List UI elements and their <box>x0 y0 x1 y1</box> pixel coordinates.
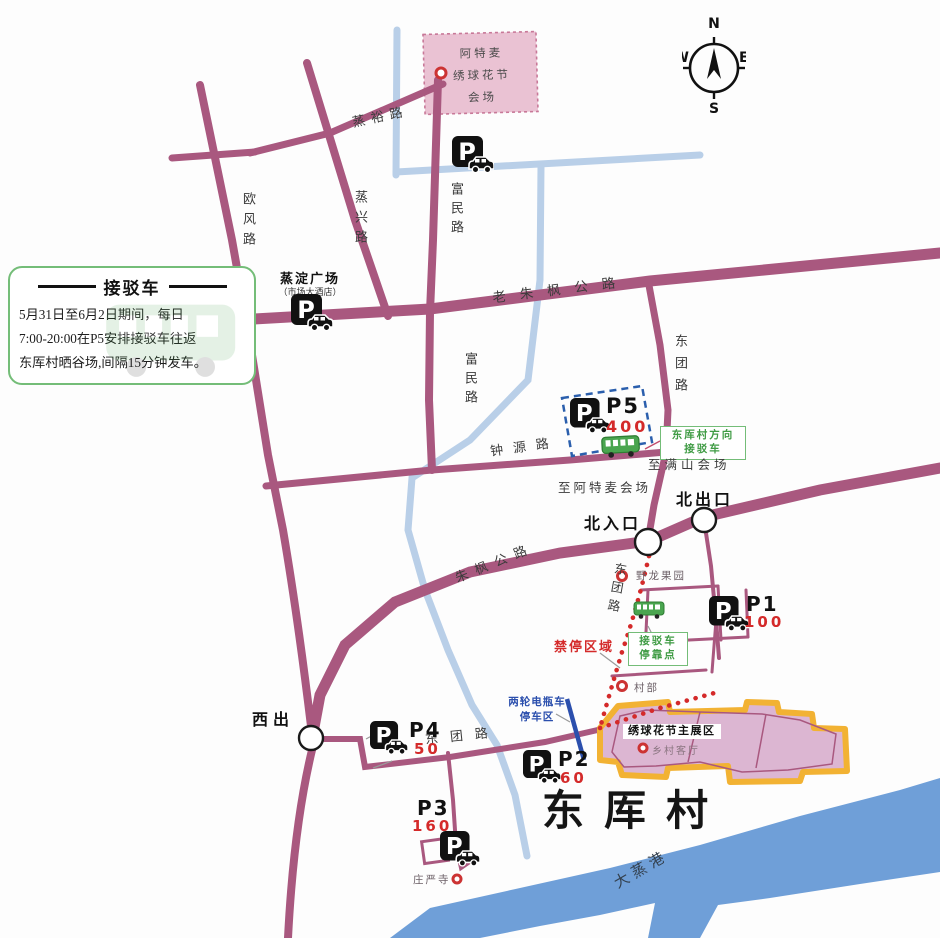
canal <box>396 155 700 172</box>
north-exit-circle <box>692 508 716 532</box>
west-exit-circle <box>299 726 323 750</box>
road-oufeng <box>200 85 311 726</box>
parking-icon: P <box>523 750 561 784</box>
shuttle-bus-icon <box>633 600 667 625</box>
parking-icon: P <box>440 831 480 867</box>
road-label-oufeng: 欧风路 <box>240 192 255 252</box>
parking-p5-label: P5 <box>606 394 640 418</box>
road-south <box>288 750 312 938</box>
road-block <box>612 670 706 676</box>
west-exit-label: 西出 <box>252 712 294 730</box>
orchard-label: 野龙果园 <box>636 568 686 583</box>
parking-icon: P <box>370 721 408 755</box>
road-label-fumin-lower: 富民路 <box>462 352 477 409</box>
parking-icon: P <box>291 294 333 332</box>
main-zone-label: 绣球花节主展区 <box>623 724 721 739</box>
shuttle-info-box: 接驳车 5月31日至6月2日期间，每日 7:00-20:00在P5安排接驳车往返… <box>8 266 256 385</box>
road-spur <box>172 152 255 158</box>
parking-p4-capacity: 50 <box>414 740 441 758</box>
no-stop-zone-label: 禁停区域 <box>554 640 614 655</box>
compass-e: E <box>739 50 746 66</box>
road-label-zhengxing: 蒸兴路 <box>352 190 367 250</box>
compass-s: S <box>709 101 719 116</box>
road-block <box>641 586 718 590</box>
village-office-label: 村部 <box>634 680 659 695</box>
shuttle-stop-box: 接驳车停靠点 <box>628 632 688 666</box>
road-zhengyu <box>250 84 443 153</box>
parking-p1-capacity: 100 <box>744 613 784 631</box>
title-rule-left <box>38 285 96 288</box>
festival-parking-map: N S E W 接驳车 5月31日至6月2日期间，每日 7:00-20:00在P… <box>0 0 940 938</box>
main-zone-area <box>600 702 847 782</box>
village-hall-label: 乡村客厅 <box>652 742 700 757</box>
parking-p4-label: P4 <box>409 718 442 742</box>
venue-label: 阿特麦绣球花节会场 <box>431 43 533 111</box>
temple-marker <box>453 875 461 883</box>
to-atmai-label: 至阿特麦会场 <box>558 481 651 495</box>
bus-watermark-icon <box>100 296 250 382</box>
shuttle-direction-box: 东厍村方向接驳车 <box>660 426 746 460</box>
shuttle-bus-icon <box>600 433 643 465</box>
compass-rose-icon: N S E W <box>682 12 746 116</box>
parking-icon: P <box>570 398 610 434</box>
leader-line <box>600 653 620 668</box>
parking-p2-capacity: 60 <box>560 769 587 787</box>
village-hall-marker <box>639 744 647 752</box>
compass-w: W <box>682 50 689 66</box>
village-name-label: 东厍村 <box>542 788 728 836</box>
road-fumin <box>429 80 438 470</box>
parking-icon: P <box>452 136 494 174</box>
road-dongtuan-right <box>648 280 668 535</box>
to-manshan-label: 至满山会场 <box>648 458 731 472</box>
compass-n: N <box>708 16 720 32</box>
village-office-marker <box>618 682 627 691</box>
parking-icon: P <box>709 596 749 632</box>
parking-p2-label: P2 <box>558 747 591 771</box>
north-exit-label: 北出口 <box>676 492 733 510</box>
ebike-parking-label: 两轮电瓶车停车区 <box>504 696 570 725</box>
north-entrance-label: 北入口 <box>584 516 641 534</box>
title-rule-right <box>169 285 227 288</box>
road-label-dongtuan-right: 东团路 <box>672 334 687 400</box>
road-label-fumin-upper: 富民路 <box>448 182 463 239</box>
temple-label: 庄严寺 <box>413 872 451 887</box>
